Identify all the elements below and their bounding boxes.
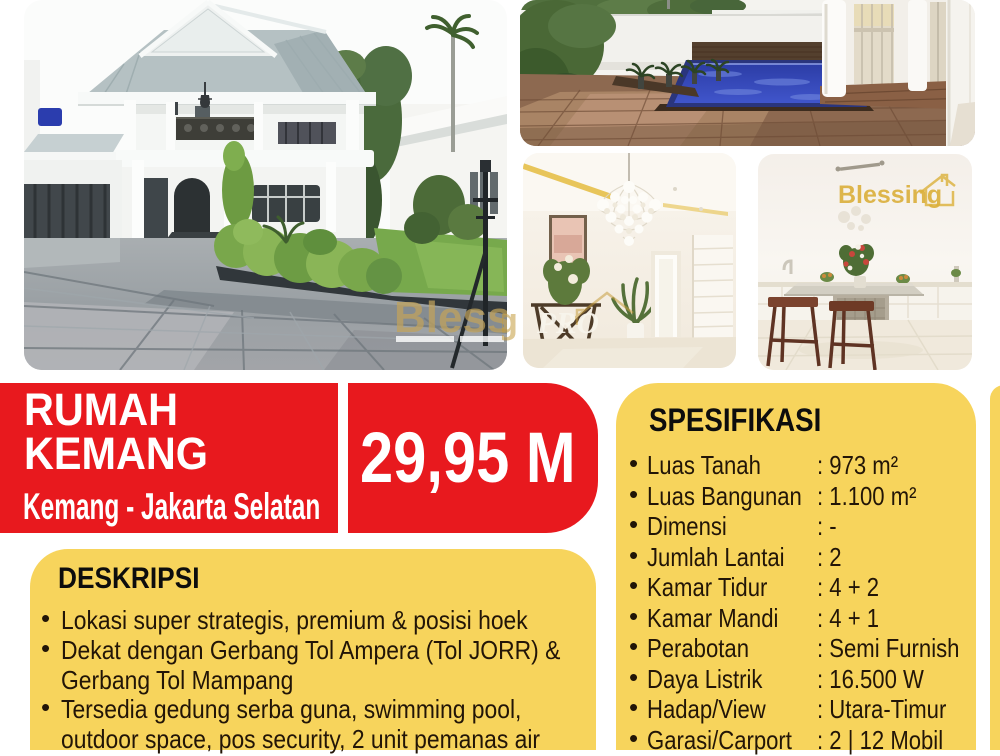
- svg-text:Blessing: Blessing: [394, 293, 507, 342]
- svg-text:PRO: PRO: [536, 305, 599, 340]
